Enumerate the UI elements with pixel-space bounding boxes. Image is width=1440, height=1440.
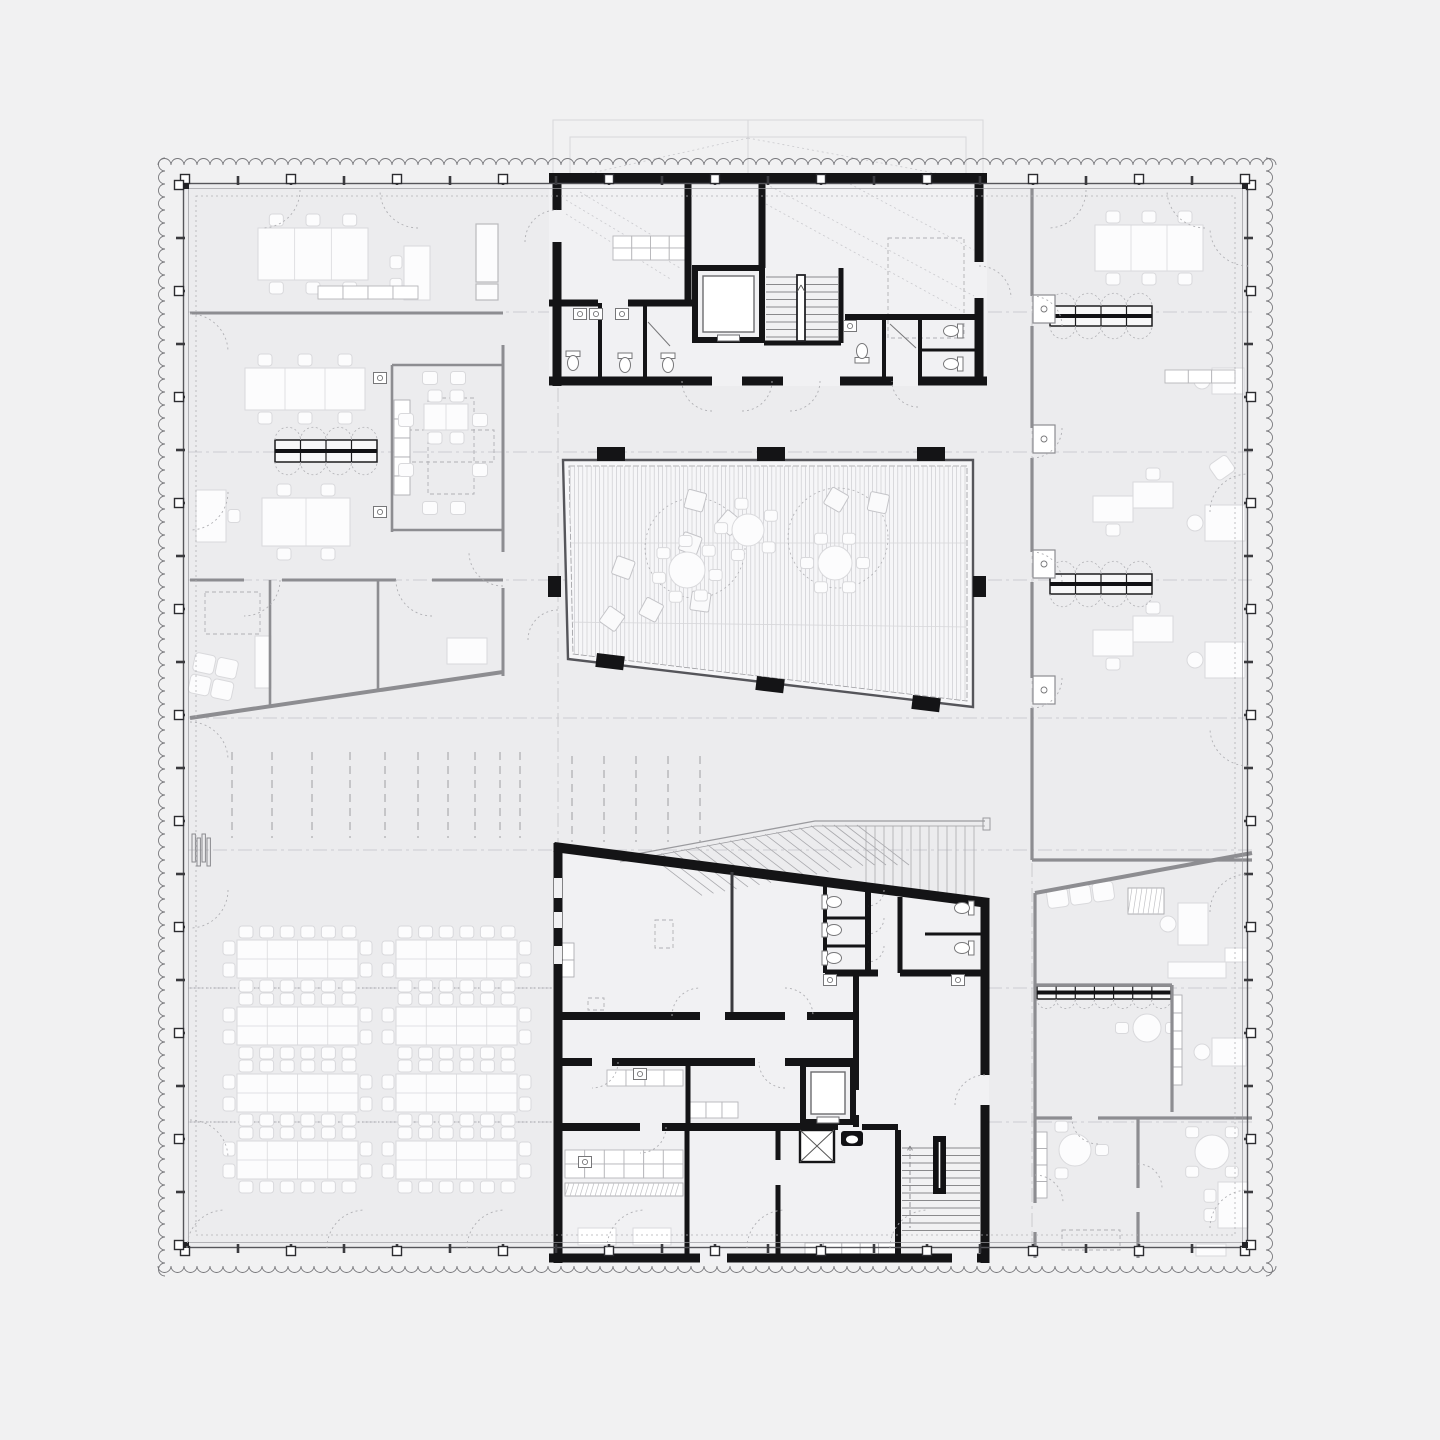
chair — [321, 1114, 335, 1126]
grid-marker — [499, 1247, 508, 1256]
table — [258, 228, 368, 280]
chair — [342, 1127, 356, 1139]
chair — [460, 1114, 474, 1126]
sink-niche — [1033, 425, 1055, 453]
counter-cell — [664, 1070, 683, 1086]
desk — [1212, 1038, 1246, 1066]
chair — [762, 542, 775, 553]
toilet — [618, 353, 632, 373]
chair — [439, 1181, 453, 1193]
chair — [280, 1047, 294, 1059]
toilet-bowl — [620, 358, 631, 373]
chair — [1142, 211, 1156, 223]
toilet-bowl — [955, 943, 970, 954]
grid-marker — [393, 175, 402, 184]
chair — [360, 1008, 372, 1022]
chair — [460, 1181, 474, 1193]
stair-rail — [797, 275, 805, 341]
chair — [321, 548, 335, 560]
chair — [460, 1047, 474, 1059]
grid-tick — [176, 1191, 185, 1194]
chair — [343, 214, 357, 226]
round-table — [1133, 1014, 1161, 1042]
grid-marker — [1135, 175, 1144, 184]
structural-column — [548, 576, 561, 597]
toilet-bowl — [955, 903, 970, 914]
shelf-cell — [1036, 1149, 1047, 1166]
chair — [843, 533, 856, 544]
chair — [382, 1075, 394, 1089]
sink-niche — [1033, 550, 1055, 578]
chair — [439, 1060, 453, 1072]
grid-marker — [1247, 499, 1256, 508]
locker-bench — [1037, 991, 1171, 995]
chair — [223, 1030, 235, 1044]
desk — [196, 490, 226, 542]
counter-cell — [613, 236, 632, 248]
grid-tick — [1244, 343, 1253, 346]
chair — [338, 354, 352, 366]
chair — [239, 980, 253, 992]
grid-marker — [175, 1029, 184, 1038]
chair — [1106, 273, 1120, 285]
chair — [439, 1127, 453, 1139]
grid-marker — [175, 393, 184, 402]
grid-tick — [555, 1244, 558, 1253]
chair — [439, 1114, 453, 1126]
chair — [857, 558, 870, 569]
chair — [428, 390, 442, 402]
locker-bench — [275, 449, 377, 453]
chair — [709, 570, 722, 581]
grid-tick — [661, 176, 664, 185]
sink — [579, 1157, 592, 1168]
chair — [428, 432, 442, 444]
grid-marker — [711, 1247, 720, 1256]
chair — [439, 980, 453, 992]
chair — [342, 980, 356, 992]
chair — [1142, 273, 1156, 285]
grid-marker — [175, 499, 184, 508]
chair — [260, 1047, 274, 1059]
chair — [480, 1181, 494, 1193]
counter-cell — [663, 1150, 683, 1164]
chair — [501, 980, 515, 992]
chair — [815, 533, 828, 544]
counter-cell — [645, 1070, 664, 1086]
grid-marker — [1247, 1029, 1256, 1038]
chair — [260, 1181, 274, 1193]
chair — [390, 256, 402, 269]
chair — [280, 926, 294, 938]
chair — [398, 1114, 412, 1126]
round-table — [732, 514, 764, 546]
chair — [501, 1047, 515, 1059]
chair — [301, 1127, 315, 1139]
chair — [280, 993, 294, 1005]
chair — [382, 1030, 394, 1044]
chair — [419, 1047, 433, 1059]
grid-tick — [1085, 1244, 1088, 1253]
chair — [439, 1047, 453, 1059]
chair — [321, 484, 335, 496]
chair — [519, 1030, 531, 1044]
chair — [1055, 1168, 1068, 1179]
locker-bench — [1050, 314, 1152, 318]
chair — [653, 572, 666, 583]
floor-cushion — [867, 491, 890, 514]
chair — [501, 1114, 515, 1126]
counter-cell — [604, 1150, 624, 1164]
chair — [1225, 1166, 1238, 1177]
shelf-cell — [394, 476, 410, 495]
toilet-bowl — [827, 925, 842, 936]
counter-cell — [604, 1164, 624, 1178]
desk — [1093, 496, 1133, 522]
desk — [255, 636, 271, 688]
grid-tick — [1244, 979, 1253, 982]
structural-column — [973, 576, 986, 597]
chair — [815, 582, 828, 593]
chair — [398, 1047, 412, 1059]
chair — [321, 993, 335, 1005]
toilet — [955, 941, 975, 955]
chair — [239, 993, 253, 1005]
corner-marker — [183, 1242, 189, 1248]
grid-marker — [175, 181, 184, 190]
structural-column — [757, 447, 785, 461]
chair — [419, 993, 433, 1005]
chair — [501, 1060, 515, 1072]
chair — [731, 550, 744, 561]
chair — [451, 502, 466, 515]
chair — [260, 1060, 274, 1072]
desk — [1218, 1182, 1248, 1228]
chair — [460, 980, 474, 992]
chair — [280, 1127, 294, 1139]
counter-cell — [318, 286, 343, 299]
counter-cell — [613, 248, 632, 260]
chair — [398, 993, 412, 1005]
chair — [519, 1142, 531, 1156]
grid-tick — [1244, 237, 1253, 240]
chair — [419, 1060, 433, 1072]
chair — [1055, 1121, 1068, 1132]
grid-tick — [1244, 661, 1253, 664]
chair — [519, 1164, 531, 1178]
chair — [382, 1142, 394, 1156]
structural-column — [597, 447, 625, 461]
couch-seat — [210, 678, 234, 701]
chair — [419, 1181, 433, 1193]
counter-cell — [690, 1102, 706, 1118]
grid-tick — [176, 555, 185, 558]
chair — [480, 1127, 494, 1139]
toilet-bowl — [857, 344, 868, 359]
chair — [239, 1114, 253, 1126]
chair — [473, 464, 488, 477]
corner-marker — [1242, 183, 1248, 189]
window-slot — [554, 912, 562, 928]
chair — [269, 282, 283, 294]
grid-marker — [1247, 1135, 1256, 1144]
grid-tick — [176, 237, 185, 240]
chair — [360, 1097, 372, 1111]
chair — [657, 548, 670, 559]
chair — [1106, 658, 1120, 670]
chair — [450, 432, 464, 444]
toilet — [944, 357, 964, 371]
chair — [715, 523, 728, 534]
floor-plan-page — [0, 0, 1440, 1440]
chair — [260, 993, 274, 1005]
toilet-bowl — [827, 953, 842, 964]
round-table — [818, 546, 852, 580]
desk — [1205, 505, 1245, 541]
chair — [382, 963, 394, 977]
chair — [223, 941, 235, 955]
chair — [519, 1008, 531, 1022]
grid-tick — [767, 1244, 770, 1253]
chair — [480, 993, 494, 1005]
counter-cell — [607, 1070, 626, 1086]
chair — [280, 1181, 294, 1193]
counter-cell — [632, 236, 651, 248]
toilet-bowl — [568, 356, 579, 371]
chair — [342, 1181, 356, 1193]
grid-tick — [1191, 1244, 1194, 1253]
grid-tick — [237, 1244, 240, 1253]
chair — [280, 980, 294, 992]
counter-cell — [632, 248, 651, 260]
grid-marker — [175, 817, 184, 826]
desk — [1178, 903, 1208, 945]
chair — [398, 1127, 412, 1139]
shelf-cell — [1036, 1132, 1047, 1149]
toilet — [566, 351, 580, 371]
grid-tick — [176, 449, 185, 452]
grid-tick — [979, 176, 982, 185]
toilet — [955, 901, 975, 915]
chair — [321, 1181, 335, 1193]
grid-marker — [923, 175, 932, 184]
chair — [501, 1181, 515, 1193]
desk — [1133, 616, 1173, 642]
counter-cell — [1188, 370, 1211, 383]
chair — [519, 1097, 531, 1111]
corner-marker — [183, 183, 189, 189]
chair — [301, 993, 315, 1005]
chair — [269, 214, 283, 226]
round-table — [1059, 1134, 1091, 1166]
counter-cell — [842, 1243, 860, 1254]
floor-cushion — [684, 489, 707, 512]
grid-tick — [1244, 555, 1253, 558]
grid-tick — [1244, 1085, 1253, 1088]
chair — [399, 464, 414, 477]
chair — [321, 1127, 335, 1139]
chair — [280, 1060, 294, 1072]
cabinet — [476, 224, 498, 282]
counter-cell — [1165, 370, 1188, 383]
sink — [374, 373, 387, 384]
round-table — [669, 552, 705, 588]
table — [1095, 225, 1203, 271]
grid-tick — [237, 176, 240, 185]
chair — [223, 1097, 235, 1111]
chair — [439, 993, 453, 1005]
grid-marker — [393, 1247, 402, 1256]
grid-marker — [1029, 1247, 1038, 1256]
grid-tick — [767, 176, 770, 185]
sink — [574, 309, 587, 320]
grid-marker — [175, 287, 184, 296]
chair — [1186, 1127, 1199, 1138]
grid-tick — [176, 979, 185, 982]
chair — [239, 1127, 253, 1139]
grid-marker — [175, 711, 184, 720]
grid-tick — [661, 1244, 664, 1253]
grid-tick — [979, 1244, 982, 1253]
elevator-doors — [718, 335, 740, 341]
floor-drain — [846, 1136, 858, 1144]
sink — [634, 1069, 647, 1080]
couch-seat — [187, 674, 211, 697]
chair — [480, 1114, 494, 1126]
chair — [1116, 1023, 1129, 1034]
chair — [342, 1047, 356, 1059]
grid-tick — [1085, 176, 1088, 185]
chair — [321, 1047, 335, 1059]
chair — [519, 963, 531, 977]
chair — [519, 1075, 531, 1089]
grid-marker — [1135, 1247, 1144, 1256]
grid-marker — [1241, 175, 1250, 184]
chair — [360, 941, 372, 955]
chair — [843, 582, 856, 593]
chair — [1204, 1189, 1216, 1202]
grid-marker — [175, 923, 184, 932]
couch-seat — [215, 657, 239, 680]
chair — [321, 980, 335, 992]
chair — [419, 980, 433, 992]
chair — [1146, 602, 1160, 614]
grid-marker — [1247, 923, 1256, 932]
window-slot — [554, 878, 562, 898]
grid-marker — [817, 175, 826, 184]
chair — [451, 372, 466, 385]
sink — [590, 309, 603, 320]
chair — [735, 498, 748, 509]
grid-tick — [176, 1085, 185, 1088]
chair — [450, 390, 464, 402]
chair — [223, 1075, 235, 1089]
chair — [460, 1127, 474, 1139]
chair — [342, 1060, 356, 1072]
sink-niche — [1033, 295, 1055, 323]
elevator-doors — [817, 1117, 839, 1123]
side-table — [1225, 948, 1247, 962]
chair — [423, 502, 438, 515]
chair — [260, 926, 274, 938]
toilet-bowl — [827, 897, 842, 908]
toilet — [855, 344, 869, 364]
chair — [277, 484, 291, 496]
chair — [301, 980, 315, 992]
toilet — [661, 353, 675, 373]
sink — [374, 507, 387, 518]
chair — [679, 536, 692, 547]
grid-marker — [287, 175, 296, 184]
chair — [223, 963, 235, 977]
grid-marker — [923, 1247, 932, 1256]
chair — [1146, 468, 1160, 480]
grid-tick — [343, 176, 346, 185]
chair — [382, 1097, 394, 1111]
desk — [447, 638, 487, 664]
sink-niche — [1033, 676, 1055, 704]
counter-cell — [879, 1243, 897, 1254]
grid-marker — [1247, 393, 1256, 402]
chair — [338, 412, 352, 424]
chair — [301, 926, 315, 938]
chair — [694, 590, 707, 601]
toilet — [822, 923, 842, 937]
chair — [321, 1060, 335, 1072]
chair — [258, 354, 272, 366]
corner-marker — [1242, 1242, 1248, 1248]
counter-cell — [644, 1150, 664, 1164]
grid-marker — [175, 1241, 184, 1250]
grid-marker — [1247, 605, 1256, 614]
chair — [321, 926, 335, 938]
desk — [1093, 630, 1133, 656]
chair — [1225, 1127, 1238, 1138]
grid-tick — [873, 176, 876, 185]
chair — [342, 1114, 356, 1126]
grid-tick — [176, 343, 185, 346]
grid-tick — [449, 176, 452, 185]
grid-marker — [287, 1247, 296, 1256]
cabinet — [476, 284, 498, 300]
grid-marker — [605, 175, 614, 184]
chair — [669, 591, 682, 602]
chair — [419, 1114, 433, 1126]
chair — [223, 1008, 235, 1022]
grid-tick — [1244, 449, 1253, 452]
chair — [280, 1114, 294, 1126]
grid-tick — [1244, 1191, 1253, 1194]
sink — [952, 975, 965, 986]
grid-marker — [711, 175, 720, 184]
sink — [616, 309, 629, 320]
chair — [1106, 211, 1120, 223]
chair — [360, 963, 372, 977]
chair — [460, 926, 474, 938]
chair — [360, 1030, 372, 1044]
desk — [1133, 482, 1173, 508]
toilet-bowl — [944, 326, 959, 337]
chair — [1204, 1209, 1216, 1222]
chair — [260, 980, 274, 992]
grid-marker — [175, 1135, 184, 1144]
chair — [301, 1060, 315, 1072]
window-slot — [554, 946, 562, 964]
chair — [501, 926, 515, 938]
office-chair — [1187, 515, 1203, 531]
chair — [480, 1047, 494, 1059]
grid-marker — [499, 175, 508, 184]
